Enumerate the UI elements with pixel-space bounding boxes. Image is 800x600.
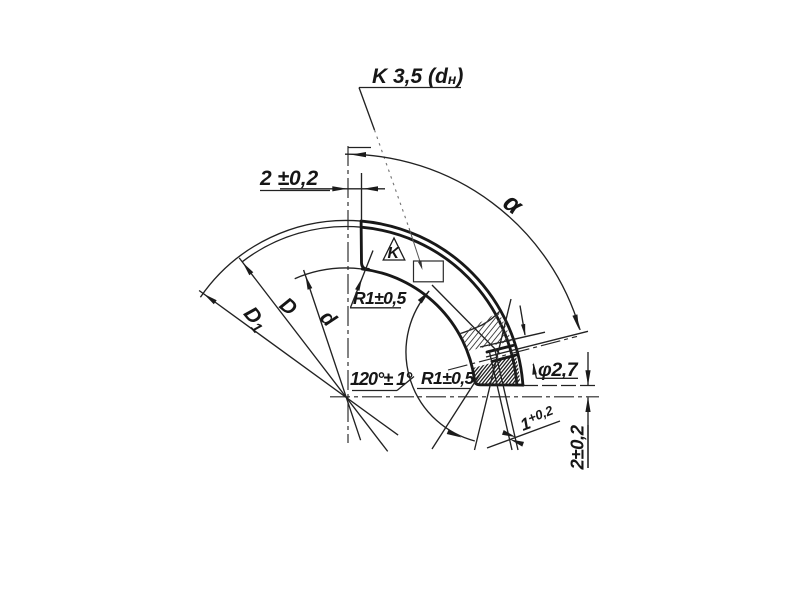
- svg-text:K 3,5 (dн): K 3,5 (dн): [372, 65, 463, 88]
- svg-text:K: K: [388, 245, 401, 262]
- svg-text:120°± 1°: 120°± 1°: [350, 369, 413, 389]
- svg-text:2 ±0,2: 2 ±0,2: [259, 167, 319, 190]
- svg-text:R1±0,5: R1±0,5: [421, 368, 475, 388]
- svg-text:α: α: [498, 187, 531, 222]
- svg-text:D: D: [275, 293, 301, 320]
- svg-text:2±0,2: 2±0,2: [567, 424, 588, 470]
- svg-text:R1±0,5: R1±0,5: [353, 288, 407, 308]
- svg-text:D1: D1: [237, 302, 271, 336]
- svg-text:d: d: [315, 306, 341, 332]
